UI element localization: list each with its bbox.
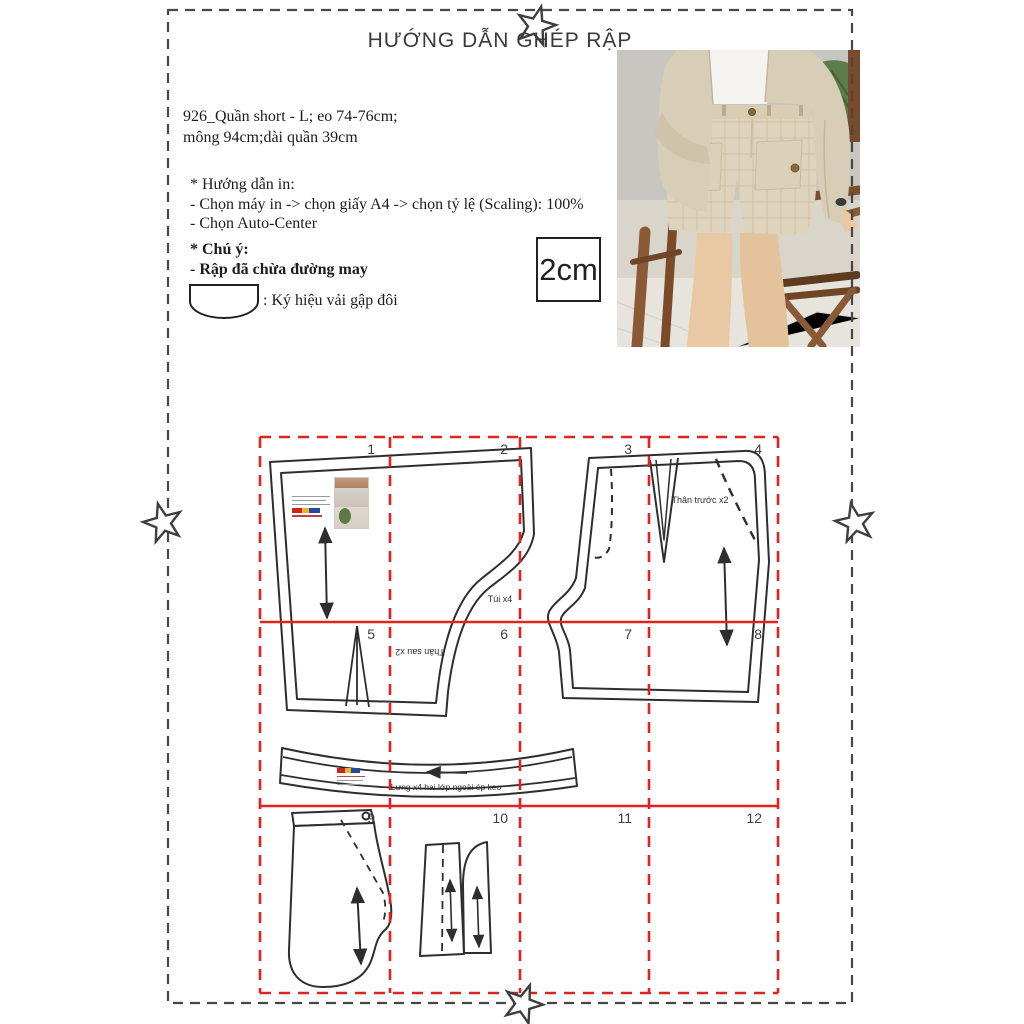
fold-symbol-label: : Ký hiệu vải gập đôi <box>263 292 398 310</box>
scale-reference-box: 2cm <box>536 237 601 302</box>
pattern-diagram: Thân sau x2 Túi x4 Thân trước x2 Lưng x4… <box>0 0 1024 1024</box>
product-info: 926_Quần short - L; eo 74-76cm; mông 94c… <box>183 106 398 148</box>
grid-page-number: 12 <box>722 810 762 826</box>
print-instructions: * Hướng dẫn in: - Chọn máy in -> chọn gi… <box>190 175 584 234</box>
front-piece-label: Thân trước x2 <box>672 495 729 505</box>
pattern-instruction-sheet: Thân sau x2 Túi x4 Thân trước x2 Lưng x4… <box>0 0 1024 1024</box>
scale-reference-label: 2cm <box>539 252 598 288</box>
print-instructions-step1: - Chọn máy in -> chọn giấy A4 -> chọn tỷ… <box>190 195 584 215</box>
star-icon <box>832 499 877 542</box>
grid-page-number: 9 <box>335 810 375 826</box>
pocket-label: Túi x4 <box>488 594 513 604</box>
grid-page-number: 11 <box>592 810 632 826</box>
print-instructions-heading: * Hướng dẫn in: <box>190 175 584 195</box>
grid-page-number: 8 <box>722 626 762 642</box>
fold-symbol-icon <box>189 284 259 319</box>
grid-page-number: 7 <box>592 626 632 642</box>
product-info-line1: 926_Quần short - L; eo 74-76cm; <box>183 106 398 127</box>
grid-page-number: 1 <box>335 441 375 457</box>
grain-arrow-icon <box>427 772 467 773</box>
back-piece-label: Thân sau x2 <box>395 647 445 657</box>
product-info-line2: mông 94cm;dài quần 39cm <box>183 127 398 148</box>
grid-page-number: 3 <box>592 441 632 457</box>
notes-block: * Chú ý: - Rập đã chừa đường may <box>190 240 368 280</box>
notes-line1: - Rập đã chừa đường may <box>190 260 368 280</box>
pocket-bag-outline <box>289 823 391 987</box>
grid-page-number: 5 <box>335 626 375 642</box>
brand-logo <box>337 766 367 788</box>
star-icon <box>139 499 185 544</box>
waistband-label: Lưng x4 hai lớp ngoài ép keo <box>391 782 502 792</box>
page-title: HƯỚNG DẪN GHÉP RẬP <box>168 29 832 53</box>
grid-page-number: 10 <box>468 810 508 826</box>
grid-page-number: 4 <box>722 441 762 457</box>
brand-photo-thumbnail <box>334 477 369 529</box>
grid-page-number: 6 <box>468 626 508 642</box>
star-icon <box>500 979 548 1024</box>
grid-page-number: 2 <box>468 441 508 457</box>
notes-heading: * Chú ý: <box>190 240 368 260</box>
print-instructions-step2: - Chọn Auto-Center <box>190 214 584 234</box>
brand-logo <box>292 493 332 519</box>
back-piece-outline <box>270 448 534 716</box>
